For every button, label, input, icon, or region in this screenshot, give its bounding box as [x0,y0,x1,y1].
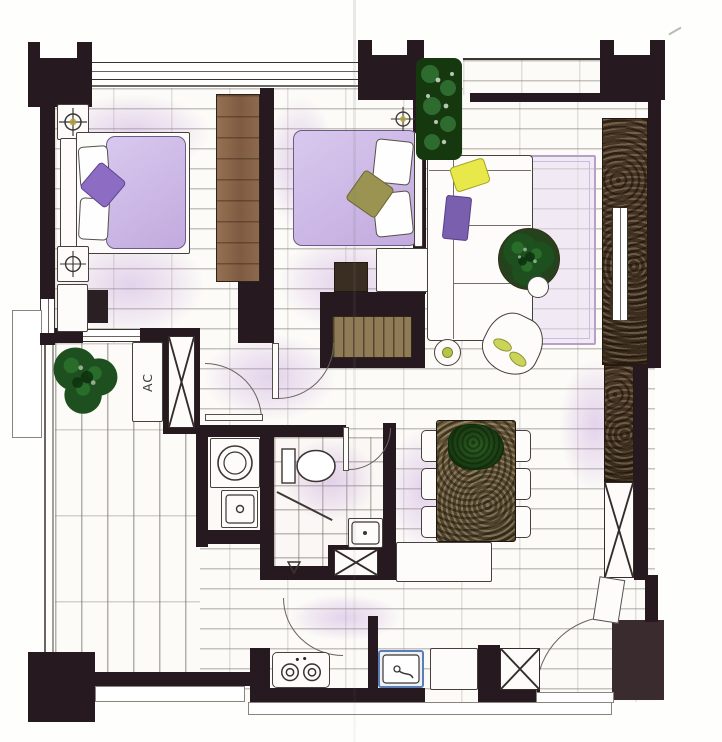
scan-crease [353,0,356,742]
exterior-band-bottom [248,702,612,715]
entrance-threshold [536,692,614,703]
tall-plant [410,54,468,164]
floor-plan-canvas: AC [0,0,722,742]
ac-unit-label: AC [140,372,155,391]
toilet [280,443,338,489]
wardrobe-base-wall [238,282,274,343]
bedroom-wall-line [92,85,358,87]
column-notch [614,40,650,55]
wardrobe [216,94,260,282]
bedroom2-door-leaf [272,343,279,399]
laundry-bottom-wall [196,530,266,544]
laundry-top-wall [196,425,266,437]
right-wall-upper [648,98,661,368]
scan-speck [668,27,681,36]
kitchen-cabinet [430,648,478,690]
entry-bottom-wall [478,690,540,702]
side-table-bowl [442,347,453,358]
fridge-shaft [500,648,540,690]
plant-saucer [527,276,549,298]
bedroom1-bench [57,284,88,332]
shower-drain [286,560,302,575]
right-wall-lower [634,365,648,580]
bath-duct-shaft [334,549,378,576]
laundry-bath-divider [260,425,274,580]
column-bottom-right [612,620,664,700]
bathroom-top-wall [274,425,346,437]
feature-wall-lower [604,365,634,482]
column-notch [40,42,77,58]
exterior-ledge [12,310,42,438]
media-shelf-wood [332,316,412,358]
sofa-purple-throw [442,195,472,241]
bed1-headboard [60,138,77,248]
column-bottom-left [28,652,95,722]
exterior-band-balcony [95,686,245,702]
entry-side-wall [645,575,658,622]
ac-duct-shaft [168,336,195,428]
balcony-door-leaf [205,414,263,421]
nightstand [57,246,89,282]
dining-table-plant [448,424,504,470]
bedroom-left-window [40,297,55,335]
bedroom-window-band [92,62,358,80]
bedroom1-tv-niche [88,290,108,323]
stove [272,652,330,688]
dining-sideboard [396,542,492,582]
kitchen-sink [378,650,424,688]
sliding-window-slit [612,208,628,320]
ac-unit: AC [132,342,163,422]
bedroom1-bottom-wall-east [140,328,163,343]
bathroom-door-leaf [343,427,349,471]
living-top-wall [470,93,648,102]
bed2-dark-cabinet [334,262,368,292]
balcony-shrub [48,340,126,422]
left-wall [40,98,55,299]
balcony-railing-outer [44,343,46,702]
laundry-sink [221,490,258,528]
balcony-bottom-wall [95,672,250,686]
column-notch [372,40,407,55]
washing-machine [210,438,260,488]
right-duct-shaft [604,482,634,578]
counter-front-wall [265,688,425,702]
